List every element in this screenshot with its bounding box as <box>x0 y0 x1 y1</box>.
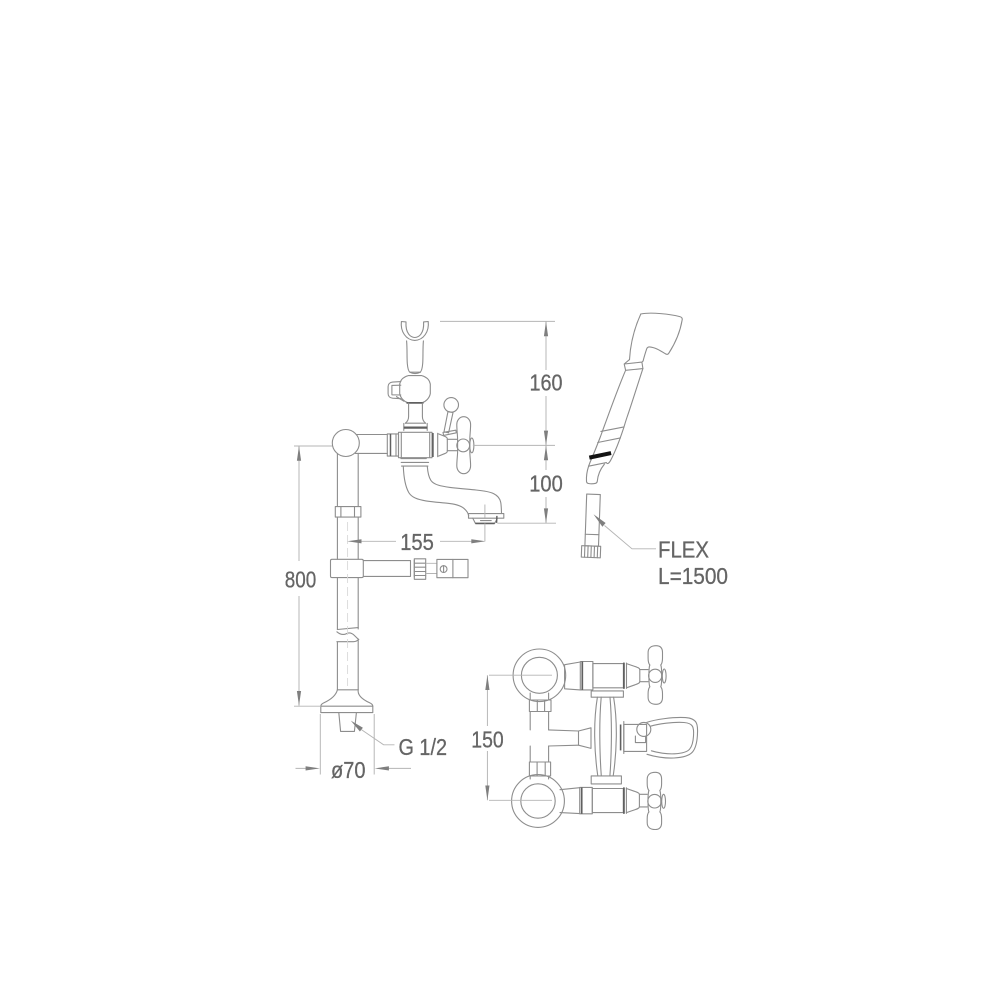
svg-text:G 1/2: G 1/2 <box>399 734 448 760</box>
svg-text:FLEX: FLEX <box>658 537 709 563</box>
svg-text:155: 155 <box>400 529 434 555</box>
svg-text:ø70: ø70 <box>331 757 366 783</box>
svg-text:100: 100 <box>529 471 563 497</box>
svg-text:150: 150 <box>471 727 503 753</box>
svg-text:800: 800 <box>285 566 317 592</box>
svg-text:160: 160 <box>530 370 563 396</box>
svg-text:L=1500: L=1500 <box>658 563 728 589</box>
